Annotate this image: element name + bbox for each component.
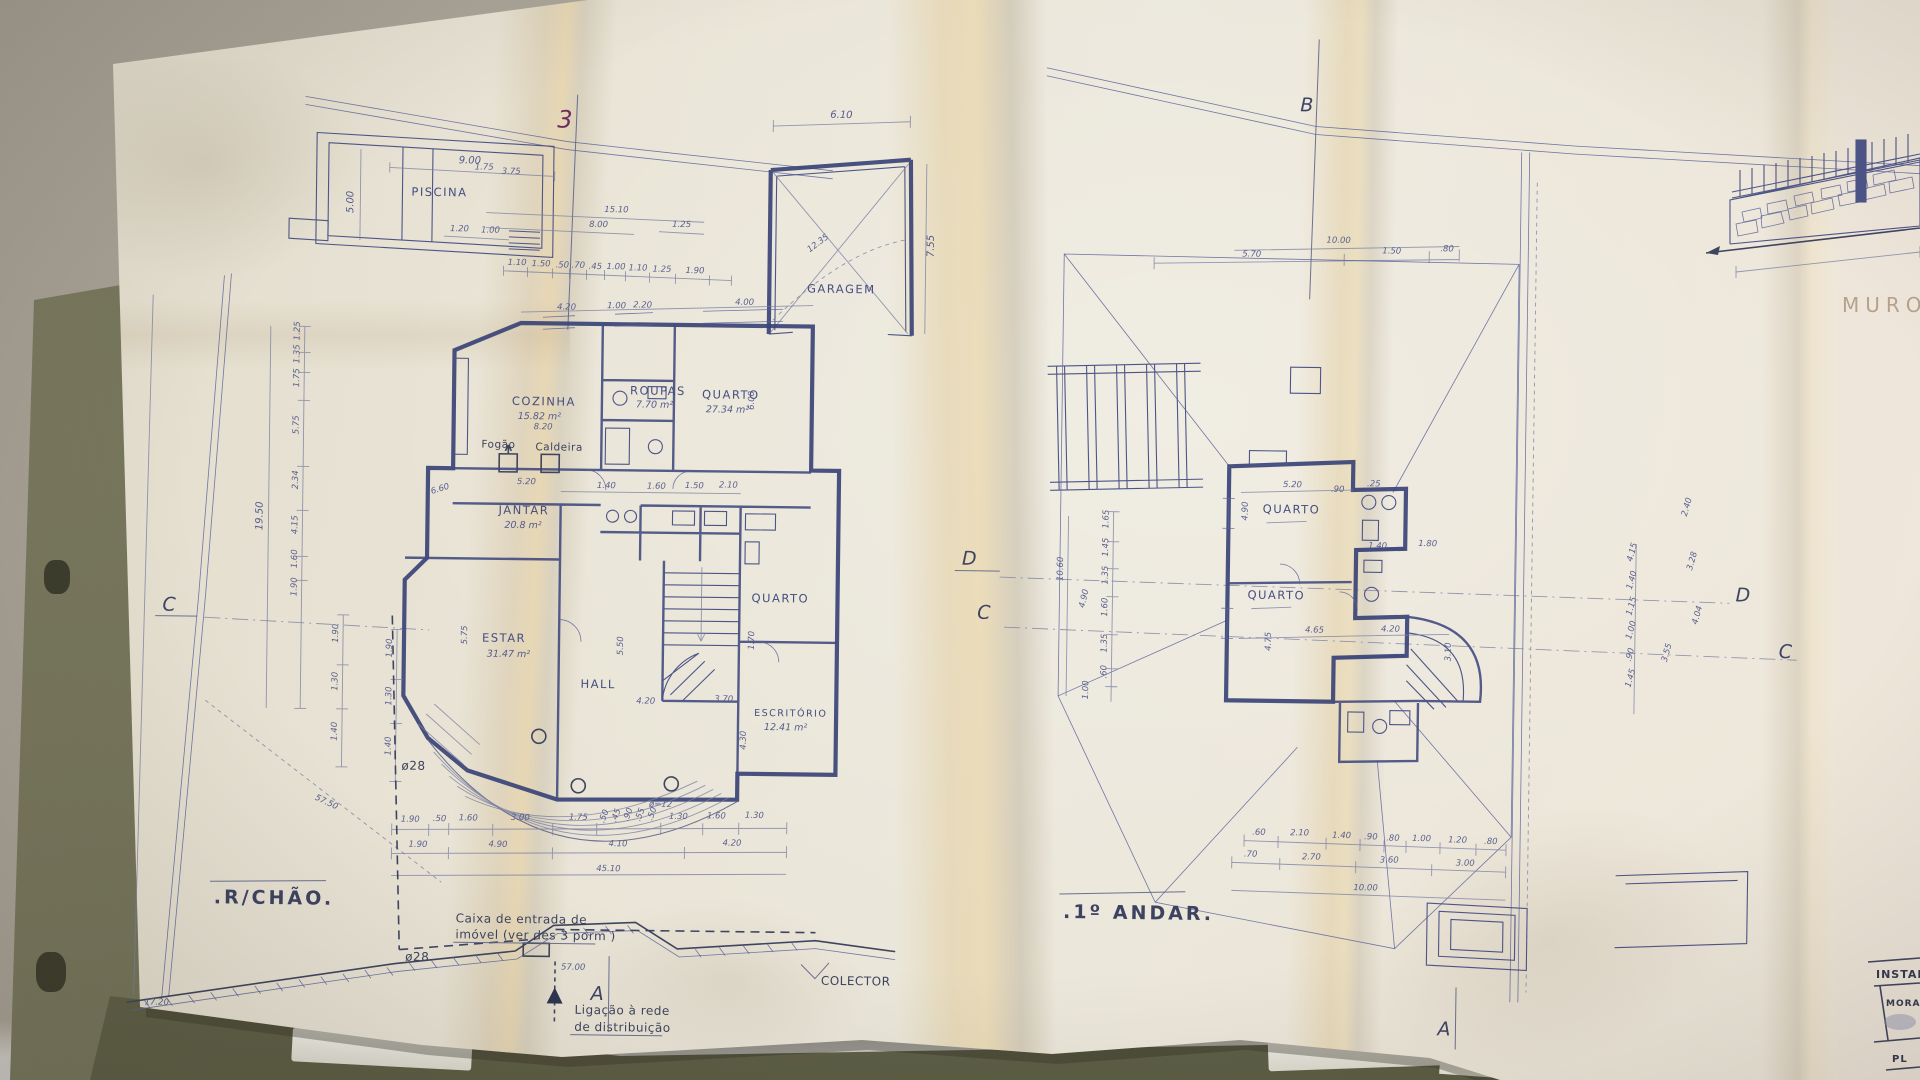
- dim-label: 1.30: [330, 672, 340, 691]
- room-area: 15.82 m²: [518, 411, 562, 423]
- dim-label: 1.50: [1382, 246, 1401, 256]
- dim-label: 1.75: [475, 162, 494, 172]
- dim-label: 1.00: [1624, 620, 1639, 641]
- note-ligacao: Ligação à rede: [574, 1003, 669, 1018]
- dim-label: 3.00: [511, 813, 530, 823]
- dim-label: 1.90: [401, 815, 420, 825]
- dim-label: 3.10: [1444, 642, 1454, 661]
- dim-label: 4.20: [636, 696, 655, 706]
- dim-label: 8.20: [534, 422, 553, 432]
- dim-label: 1.90: [290, 577, 300, 596]
- dim-label: .80: [1386, 834, 1400, 844]
- dim-label: .70: [1244, 850, 1258, 860]
- dim-label: 15.10: [604, 205, 628, 215]
- dim-label: 4.20: [722, 839, 741, 849]
- room-label-piscina: PISCINA: [411, 185, 467, 200]
- site-boundary-right: [1034, 36, 1920, 1008]
- dim-label: 1.25: [293, 321, 303, 340]
- dim-label: 1.60: [707, 811, 726, 821]
- section-marker-a: A: [1435, 1018, 1450, 1040]
- section-marker-d: D: [1735, 584, 1750, 606]
- dim-label: 1.25: [672, 220, 691, 230]
- dim-label: 3.60: [1380, 855, 1399, 865]
- dim-label: 1.45: [1624, 668, 1639, 689]
- dim-label: 1.40: [1625, 570, 1640, 591]
- dim-label: 3.75: [502, 167, 521, 177]
- dim-label: 4.15: [290, 515, 300, 534]
- dim-label: 1.90: [685, 266, 704, 276]
- dim-label: 1.70: [747, 631, 757, 650]
- label-caldeira: Caldeira: [535, 441, 583, 454]
- dim-label: 10.00: [1353, 883, 1377, 893]
- dim-label: 8.00: [589, 220, 608, 230]
- dim-label: .50: [597, 808, 611, 824]
- dim-label: .50: [556, 260, 570, 270]
- dim-label: 1.20: [450, 224, 469, 234]
- dim-label: 6.00: [747, 391, 757, 410]
- dim-label: 1.25: [652, 265, 671, 275]
- dim-label: 4.10: [608, 839, 627, 849]
- dim-label: 1.15: [1625, 596, 1640, 617]
- pool-plan: 9.00 5.00 1.20 1.00 15.10 8.00 1.25 1.75…: [289, 132, 705, 259]
- label-muro: MURO: [1842, 293, 1920, 317]
- dim-label: 2.34: [291, 470, 301, 489]
- dim-label: 3.55: [1660, 642, 1675, 663]
- dim-label: 1.00: [481, 226, 500, 236]
- room-label-estar: ESTAR: [482, 631, 526, 646]
- dim-label: 1.10: [508, 258, 527, 268]
- dim-label: 1.40: [1368, 541, 1387, 551]
- dim-label: .60: [1099, 665, 1109, 679]
- dim-label: 1.60: [647, 482, 666, 492]
- dim-label: 1.60: [459, 813, 478, 823]
- dim-label: 5.20: [1283, 480, 1302, 490]
- dim-label: 4.00: [735, 298, 754, 308]
- room-area: 12.41 m²: [764, 722, 808, 734]
- plan-title-ground: .R/CHÃO.: [214, 884, 335, 909]
- dim-label: 19.50: [254, 501, 265, 530]
- dim-label: 5.75: [460, 625, 470, 644]
- dim-label: 4.65: [1305, 625, 1324, 635]
- annotations: Caixa de entrada de imóvel (ver des 3 po…: [452, 911, 891, 1038]
- stone-hatch: [1736, 170, 1914, 236]
- right-chain-right-plan: 4.15 1.40 1.15 1.00 .90 1.45 2.40 3.28 4…: [1623, 496, 1707, 715]
- bathroom-fixtures: [604, 386, 777, 564]
- dim-label: 1.00: [607, 301, 626, 311]
- title-block: INSTAL MORAD PL: [1868, 958, 1920, 1070]
- room-area: 20.8 m²: [504, 520, 542, 531]
- pergola: [1048, 363, 1204, 490]
- section-marker-d: D: [962, 548, 977, 570]
- dim-label: 4.30: [739, 731, 749, 750]
- dim-label: 1.75: [569, 813, 588, 823]
- drawing-layer: C 3 9.00 5.00 1.20 1.00 15.10 8.00 1.25 …: [0, 0, 1920, 1080]
- dim-label: .90: [1624, 647, 1637, 663]
- dim-label: .45: [609, 807, 623, 823]
- room-label-escritorio: ESCRITÓRIO: [754, 707, 827, 720]
- dim-label: .60: [1252, 828, 1266, 838]
- wall-elevation: MURO: [1706, 134, 1920, 317]
- dim-label: 1.35: [1101, 566, 1111, 585]
- dim-label: .70: [572, 261, 586, 271]
- bottom-chains-right-plan: .60 2.10 1.40 .90 .80 1.00 1.20 .80 .70 …: [1231, 827, 1506, 900]
- room-label-jantar: JANTAR: [498, 503, 550, 518]
- dim-label: 2.70: [1302, 852, 1321, 862]
- note-colector: COLECTOR: [821, 974, 891, 989]
- dim-label: 5.20: [517, 477, 536, 487]
- dim-chain-top: 1.10 1.50 .50 .70 .45 1.00 1.10 1.25 1.9…: [503, 258, 731, 286]
- dim-label: 10.00: [1326, 236, 1350, 246]
- dim-label: 3.28: [1685, 550, 1700, 572]
- label-fogao: Fogão: [481, 439, 515, 451]
- first-floor-walls: [1219, 450, 1484, 764]
- dim-label: 5.00: [345, 191, 356, 213]
- dim-label: 1.40: [384, 736, 394, 755]
- dim-label: 1.60: [290, 549, 300, 568]
- dim-label: .80: [1484, 837, 1498, 847]
- roof-lines: [1055, 254, 1520, 950]
- dim-label: 17.20: [144, 997, 168, 1007]
- interior-dims: 4.20 1.00 2.20 4.00 6.00 1.40 1.60 1.50 …: [426, 294, 813, 812]
- dim-label: 1.10: [629, 263, 648, 273]
- dim-label: 1.35: [292, 344, 302, 363]
- dim-label: .50: [433, 814, 447, 824]
- page-number: 3: [557, 105, 573, 133]
- terrace-right-plan: A: [1425, 867, 1748, 1053]
- dim-label: .90: [1331, 485, 1345, 495]
- dim-label: 1.50: [685, 481, 704, 491]
- dim-label: 2.10: [1290, 828, 1309, 838]
- room-area: 27.34 m²: [706, 404, 750, 416]
- dim-label: 1.50: [532, 259, 551, 269]
- ground-floor-plan: C 3 9.00 5.00 1.20 1.00 15.10 8.00 1.25 …: [126, 89, 938, 1039]
- dim-label: 1.80: [1418, 539, 1437, 549]
- section-marker-c: C: [1779, 641, 1793, 663]
- dim-label: 1.30: [384, 686, 394, 705]
- dim-label: 4.90: [1077, 588, 1091, 609]
- room-label-quarto2: QUARTO: [1247, 588, 1305, 603]
- dim-label: 4.20: [1381, 624, 1400, 634]
- dim-label: 1.65: [1101, 510, 1111, 529]
- garage-plan: GARAGEM 6.10 7.55 12.35: [769, 109, 939, 336]
- title-block-text: MORAD: [1886, 999, 1920, 1009]
- section-marker-c: C: [977, 602, 991, 624]
- dim-label: 4.90: [1241, 502, 1251, 521]
- dim-label: 1.00: [607, 262, 626, 272]
- room-label-hall: HALL: [580, 677, 616, 691]
- dim-label: 3.70: [714, 694, 733, 704]
- dim-label: 6.60: [430, 482, 451, 497]
- dim-label: 1.40: [330, 722, 340, 741]
- dim-label: 1.90: [408, 840, 427, 850]
- ground-arrow: [1706, 246, 1720, 255]
- section-marker-c: C: [162, 594, 176, 616]
- dim-label: 4.90: [488, 840, 507, 850]
- dim-label: 57.00: [561, 963, 585, 973]
- pipe-diameter: ø28: [401, 759, 425, 773]
- dim-label: 3.00: [1456, 859, 1475, 869]
- dim-label: .90: [1364, 832, 1378, 842]
- dim-label: 45.10: [596, 864, 620, 874]
- dim-label: 1.75: [292, 368, 302, 387]
- room-label-garagem: GARAGEM: [807, 282, 876, 297]
- dim-label: 1.45: [1101, 538, 1111, 557]
- dim-label: 1.30: [669, 812, 688, 822]
- left-dim-chains: 1.25 1.35 1.75 5.75 2.34 4.15 1.60 1.90 …: [251, 321, 407, 813]
- dim-label: 2.10: [719, 480, 738, 490]
- dim-label: 1.00: [1412, 834, 1431, 844]
- dim-label: 4.75: [1264, 632, 1274, 651]
- note-ligacao: de distribuição: [574, 1020, 671, 1035]
- room-label-quarto-s: QUARTO: [751, 591, 809, 606]
- dim-label: 1.00: [1081, 680, 1091, 699]
- note-caixa: Caixa de entrada de: [456, 911, 588, 927]
- room-label-cozinha: COZINHA: [512, 394, 576, 409]
- note-caixa: imóvel (ver des 3 porm ): [455, 927, 615, 943]
- plan-title-first: .1º ANDAR.: [1063, 901, 1214, 925]
- dim-label: 4.20: [557, 302, 576, 312]
- dim-label: 12.35: [806, 232, 831, 255]
- first-floor-plan: B D D C C 10.00 5.70 1.50 .80: [948, 35, 1920, 1056]
- dim-label: 6.10: [830, 110, 852, 121]
- dim-label: 7.55: [926, 235, 937, 257]
- dim-label: .25: [1367, 479, 1381, 489]
- dim-label: 10.60: [1056, 557, 1066, 581]
- room-label-roupas: ROUPAS: [630, 383, 686, 398]
- dim-label: 1.40: [597, 481, 616, 491]
- dim-label: 4.04: [1690, 605, 1705, 626]
- dim-label: 2.40: [1680, 497, 1695, 518]
- dim-label: 5.75: [292, 415, 302, 434]
- stamp-smudge: [1884, 1014, 1916, 1030]
- room-label-quarto1: QUARTO: [1263, 502, 1321, 517]
- photo-of-blueprint: { "scene": { "description": "Photograph …: [0, 0, 1920, 1080]
- dim-label: 1.35: [1100, 634, 1110, 653]
- room-area: 7.70 m²: [636, 399, 674, 410]
- dim-label: 1.90: [331, 624, 341, 643]
- dim-label: 2.20: [633, 300, 652, 310]
- arrow-up: [547, 987, 563, 1003]
- section-marker-b: B: [1300, 94, 1313, 116]
- top-dims-right: 10.00 5.70 1.50 .80: [1154, 233, 1459, 273]
- dim-label: 1.20: [1448, 835, 1467, 845]
- dim-label: 1.60: [1100, 598, 1110, 617]
- dim-label: 1.40: [1332, 831, 1351, 841]
- dim-label: 5.50: [616, 636, 626, 655]
- dim-label: .45: [589, 262, 603, 272]
- dim-label: 57.50: [313, 793, 339, 812]
- property-line: ø28 ø28: [388, 615, 433, 963]
- title-block-text: PL: [1892, 1054, 1908, 1065]
- room-area: 31.47 m²: [487, 649, 531, 661]
- dim-label: .80: [1440, 244, 1454, 254]
- section-marker-a: A: [589, 983, 604, 1005]
- stairs: [662, 567, 740, 702]
- title-block-text: INSTAL: [1876, 968, 1920, 981]
- dim-label: 1.30: [745, 811, 764, 821]
- dim-label: 4.15: [1625, 542, 1640, 563]
- blueprint-svg: C 3 9.00 5.00 1.20 1.00 15.10 8.00 1.25 …: [0, 0, 1920, 1080]
